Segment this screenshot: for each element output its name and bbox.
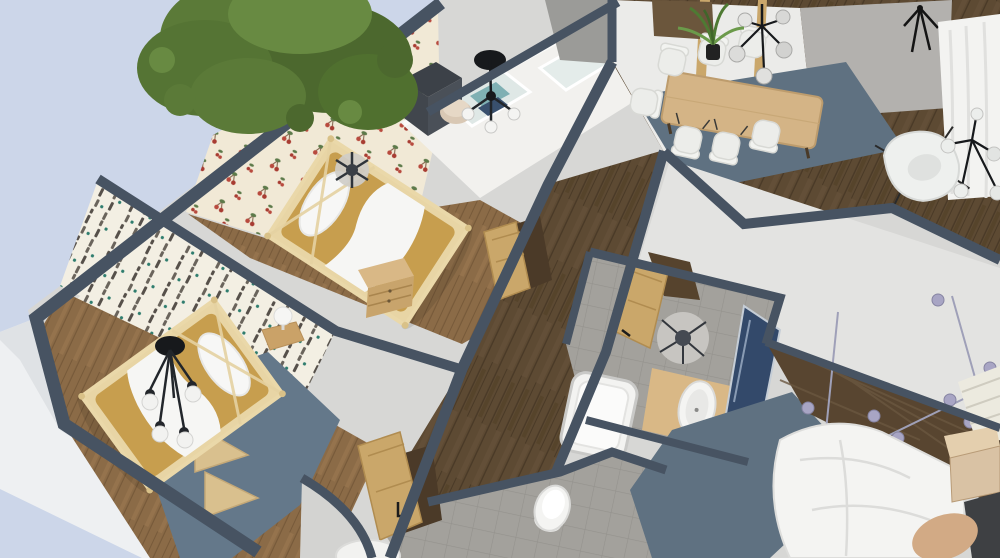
floorplan-3d-viewport[interactable] (0, 0, 1000, 558)
master-nightstand[interactable] (944, 426, 1000, 502)
tree (137, 0, 418, 134)
bathroom-ceiling-lamp-icon[interactable] (657, 312, 709, 364)
